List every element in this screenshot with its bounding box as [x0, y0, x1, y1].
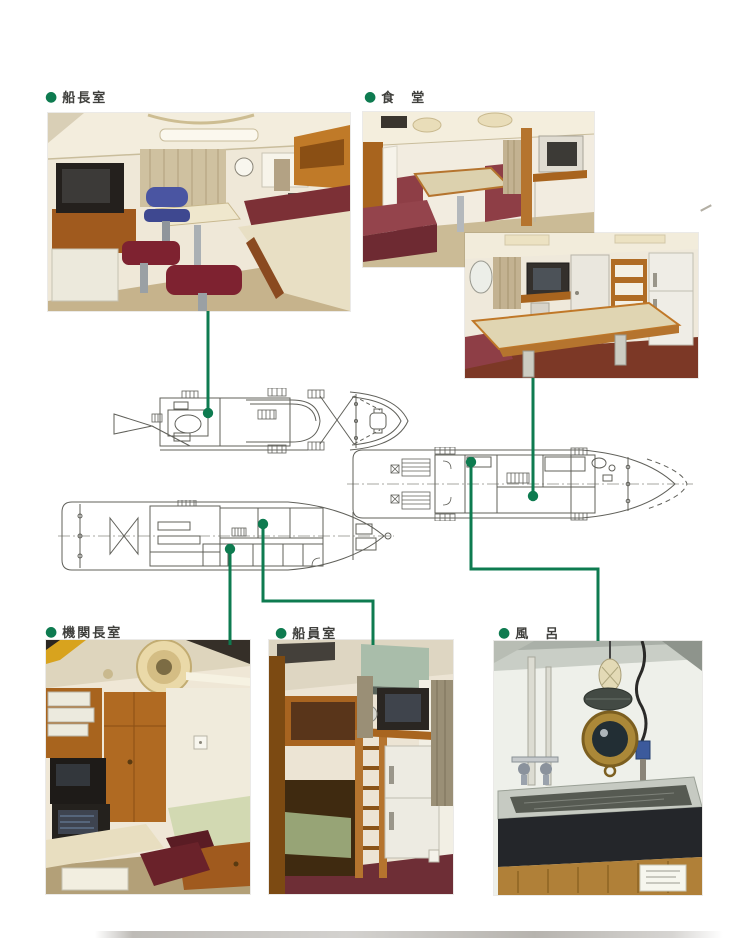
section-label-engineer: ● 機関長室 [45, 624, 122, 639]
scan-smudge-bar [95, 931, 723, 938]
section-label-dining: ● 食 堂 [364, 89, 426, 104]
bullet-icon: ● [45, 625, 57, 639]
crew-room-illustration [269, 640, 453, 894]
section-label-text: 食 堂 [381, 87, 426, 106]
deck-plan-main-deck [347, 447, 693, 525]
dining-inset-illustration [465, 233, 698, 378]
bullet-icon: ● [275, 626, 287, 640]
scan-scuff-mark [700, 204, 712, 211]
photo-chief-engineers-room [46, 640, 250, 894]
captains-room-illustration [48, 113, 350, 311]
engineers-room-illustration [46, 640, 250, 894]
photo-bath [494, 641, 702, 895]
bullet-icon: ● [498, 626, 510, 640]
section-label-bath: ● 風 呂 [498, 625, 560, 640]
photo-crew-room [269, 640, 453, 894]
section-label-text: 船長室 [62, 87, 107, 106]
section-label-text: 機関長室 [62, 622, 122, 641]
lower-deck-drawing [58, 500, 394, 572]
section-label-crew: ● 船員室 [275, 625, 337, 640]
scanned-brochure-page: ● 船長室 ● 食 堂 ● 機関長室 ● 船員室 ● 風 呂 [0, 0, 733, 942]
bullet-icon: ● [45, 90, 57, 104]
section-label-text: 風 呂 [515, 623, 560, 642]
photo-captains-room [48, 113, 350, 311]
main-deck-drawing [347, 447, 693, 521]
bullet-icon: ● [364, 90, 376, 104]
boat-deck-drawing [112, 388, 414, 454]
deck-plan-lower-deck [58, 500, 394, 576]
section-label-captain: ● 船長室 [45, 89, 107, 104]
bath-illustration [494, 641, 702, 895]
photo-dining-room-inset [465, 233, 698, 378]
